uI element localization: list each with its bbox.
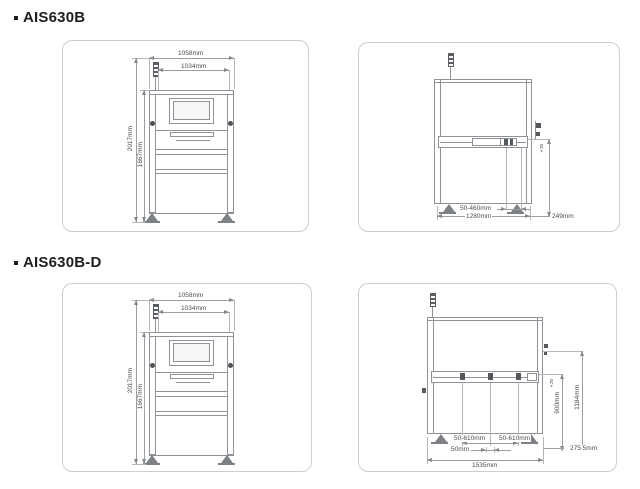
machine-left-column <box>149 336 156 455</box>
witness-line <box>158 70 159 90</box>
mid-panel-line-2 <box>156 154 227 155</box>
witness-line <box>132 222 146 223</box>
right-foot-base <box>507 212 524 214</box>
lower-panel-line-2 <box>156 415 227 416</box>
signal-tower <box>448 53 454 67</box>
dim-line-width-outer <box>149 300 234 301</box>
dim-label-upper-height: 1184mm <box>574 384 581 411</box>
protruding-knob <box>536 132 540 136</box>
dim-label-width-outer: 1058mm <box>177 292 204 299</box>
panel-side-view-ais630b: ±20 50-460mm 1280mm 249mm <box>358 42 620 232</box>
left-foot <box>443 204 455 212</box>
lower-panel-line-2 <box>156 173 227 174</box>
title-bullet <box>14 16 18 20</box>
arrowhead <box>580 351 584 356</box>
right-foot <box>221 455 233 463</box>
witness-line <box>149 300 150 331</box>
dim-line-conveyor-height <box>549 139 550 217</box>
left-foot <box>435 434 447 442</box>
arrowhead <box>149 298 154 302</box>
dim-label-height-total: 2017mm <box>127 125 134 152</box>
keyboard-tray <box>170 132 214 137</box>
arrowhead <box>134 300 138 305</box>
tray-underline <box>176 140 210 141</box>
lower-panel-line-1 <box>156 169 227 170</box>
witness-line <box>506 148 507 210</box>
dim-line-width-inner <box>158 70 229 71</box>
tray-shelf-line <box>156 130 227 131</box>
arrowhead <box>142 459 146 464</box>
protruding-knob <box>544 352 547 355</box>
left-foot <box>146 455 158 463</box>
signal-tower-pole <box>432 307 433 317</box>
witness-line <box>543 351 582 352</box>
arrowhead <box>158 310 163 314</box>
arrowhead <box>560 374 564 379</box>
dim-label-lane1: 50-610mm <box>453 435 486 442</box>
dim-line-lane-gap <box>471 450 511 451</box>
machine-top-beam <box>149 90 234 95</box>
conveyor-clamp <box>516 373 521 380</box>
right-foot <box>221 213 233 221</box>
panel-front-view-ais630b: 1058mm 1034mm 2017mm 1667mm <box>62 40 309 232</box>
left-knob <box>150 121 155 126</box>
arrowhead <box>224 68 229 72</box>
keyboard-tray <box>170 374 214 379</box>
arrowhead <box>494 448 499 452</box>
dim-label-tolerance: ±20 <box>550 378 555 390</box>
witness-line <box>486 447 487 453</box>
dim-line-upper-height <box>582 351 583 451</box>
dim-label-depth: 1280mm <box>465 213 492 220</box>
arrowhead <box>224 310 229 314</box>
monitor-screen <box>173 343 210 362</box>
dim-label-conveyor-height: 900mm <box>554 391 561 415</box>
arrowhead <box>437 214 442 218</box>
model-name-ais630b-d: AIS630B-D <box>23 254 102 271</box>
page: AIS630B 1058mm 1034mm <box>0 0 640 489</box>
right-knob <box>228 121 233 126</box>
dim-line-lanes <box>462 443 518 444</box>
right-foot-base <box>218 221 235 223</box>
dim-label-exit-extension: 249mm <box>551 213 575 220</box>
witness-line <box>149 58 150 89</box>
witness-line <box>229 312 230 332</box>
signal-tower-pole <box>155 319 156 332</box>
conveyor-divider <box>500 138 501 146</box>
dim-line-width-inner <box>158 312 229 313</box>
arrowhead <box>538 458 543 462</box>
protruding-knob <box>544 344 548 348</box>
arrowhead <box>501 207 506 211</box>
machine-left-column <box>149 94 156 213</box>
dim-label-height-total: 2017mm <box>127 367 134 394</box>
witness-line <box>234 58 235 89</box>
dim-label-lane2: 50-610mm <box>498 435 531 442</box>
conveyor-clamp <box>460 373 465 380</box>
left-knob <box>150 363 155 368</box>
dim-label-height-body: 1667mm <box>137 383 144 410</box>
dim-label-tolerance: ±20 <box>540 143 545 155</box>
top-edge-line <box>434 82 532 83</box>
right-knob <box>228 363 233 368</box>
dim-line-height-body <box>144 90 145 222</box>
signal-tower <box>430 293 436 307</box>
dim-label-depth-total: 1535mm <box>471 462 498 469</box>
signal-tower-pole <box>155 77 156 90</box>
dim-label-pcb-width: 50-460mm <box>459 205 492 212</box>
left-edge-detail <box>422 388 426 393</box>
dim-label-height-body: 1667mm <box>137 141 144 168</box>
arrowhead <box>481 448 486 452</box>
machine-top-beam <box>149 332 234 337</box>
arrowhead <box>229 298 234 302</box>
arrowhead <box>134 58 138 63</box>
witness-line <box>234 300 235 331</box>
section-title-ais630b: AIS630B <box>14 9 85 26</box>
dim-line-height-total <box>136 300 137 464</box>
signal-tower-pole <box>450 67 451 79</box>
witness-line <box>530 206 531 220</box>
dim-line-conveyor-height <box>562 374 563 451</box>
panel-front-view-ais630b-d: 1058mm 1034mm 2017mm 1667mm <box>62 283 312 472</box>
panel-side-view-ais630b-d: 50-610mm 50-610mm 50mm 1535mm 900mm ±20 … <box>358 283 617 472</box>
witness-line <box>229 70 230 90</box>
model-name-ais630b: AIS630B <box>23 9 85 26</box>
witness-line <box>158 312 159 332</box>
left-foot-base <box>431 442 448 444</box>
tray-shelf-line <box>156 372 227 373</box>
machine-right-column <box>227 336 234 455</box>
machine-right-column <box>227 94 234 213</box>
arrowhead <box>134 217 138 222</box>
arrowhead <box>427 458 432 462</box>
witness-line <box>490 383 491 446</box>
dim-label-width-inner: 1034mm <box>180 63 207 70</box>
arrowhead <box>149 56 154 60</box>
conveyor-clamp <box>504 139 508 145</box>
dim-line-height-body <box>144 332 145 464</box>
mid-panel-line-2 <box>156 396 227 397</box>
section-title-ais630b-d: AIS630B-D <box>14 254 102 271</box>
witness-line <box>543 437 544 464</box>
conveyor-rail <box>433 377 537 378</box>
dim-line-height-total <box>136 58 137 222</box>
conveyor-clamp <box>510 139 513 145</box>
conveyor-clamp <box>488 373 493 380</box>
witness-line <box>132 464 146 465</box>
title-bullet <box>14 261 18 265</box>
dim-line-exit-extension <box>543 448 564 449</box>
arrowhead <box>142 332 146 337</box>
mid-panel-line-1 <box>156 391 227 392</box>
arrowhead <box>158 68 163 72</box>
dim-label-exit-extension: 275.5mm <box>569 445 598 452</box>
dim-line-width-outer <box>149 58 234 59</box>
tray-underline <box>176 382 210 383</box>
arrowhead <box>521 207 526 211</box>
left-foot <box>146 213 158 221</box>
top-edge-line <box>427 320 543 321</box>
monitor-screen <box>173 101 210 120</box>
arrowhead <box>134 459 138 464</box>
protruding-knob <box>536 123 541 128</box>
arrowhead <box>142 217 146 222</box>
dim-label-width-inner: 1034mm <box>180 305 207 312</box>
right-foot-base <box>521 442 538 444</box>
right-foot-base <box>218 463 235 465</box>
witness-line <box>521 148 522 210</box>
dim-line-exit-extension <box>530 216 549 217</box>
conveyor-end-block <box>527 373 537 381</box>
arrowhead <box>547 139 551 144</box>
arrowhead <box>229 56 234 60</box>
dim-label-lane-gap: 50mm <box>450 446 470 453</box>
lower-panel-line-1 <box>156 411 227 412</box>
arrowhead <box>142 90 146 95</box>
dim-label-width-outer: 1058mm <box>177 50 204 57</box>
mid-panel-line-1 <box>156 149 227 150</box>
